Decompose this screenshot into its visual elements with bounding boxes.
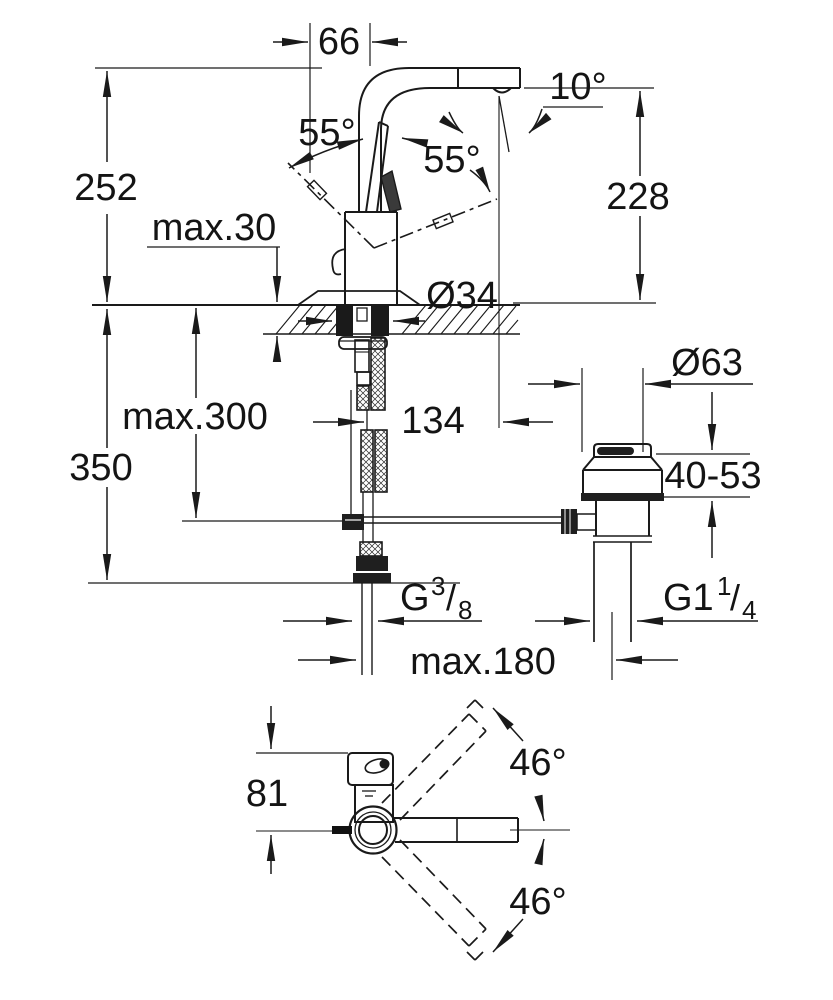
label-swivel-angle-upper: 46° (509, 742, 566, 784)
label-head-depth: 81 (246, 773, 288, 815)
label-supply-thread: G 3 / 8 (400, 571, 472, 625)
dim-max-deck-thickness (147, 247, 280, 360)
front-view-labels: 66 252 228 10° 55° 55° max.30 Ø34 max.30… (69, 21, 761, 683)
side-hook (332, 249, 346, 274)
rod-knob (561, 509, 577, 534)
swivel-base (350, 807, 397, 854)
svg-text:4: 4 (742, 595, 756, 625)
svg-text:3: 3 (431, 571, 445, 601)
label-overall-height: 252 (74, 167, 137, 209)
label-waste-flange-diameter: Ø63 (671, 342, 743, 384)
label-clearance-depth: 350 (69, 447, 132, 489)
supply-nut (353, 573, 391, 583)
label-lever-angle-left: 55° (298, 112, 355, 154)
lever-handle (366, 122, 401, 212)
svg-text:/: / (730, 577, 740, 618)
label-hole-diameter: Ø34 (426, 275, 498, 317)
svg-text:G: G (400, 577, 430, 619)
svg-text:G1: G1 (663, 577, 714, 619)
label-max-deck-thickness: max.30 (152, 207, 277, 249)
spout-top-view (393, 818, 518, 842)
arc-swivel-lower-inner (539, 839, 544, 857)
top-view-dimensions (256, 706, 544, 952)
rod-end-top-view (332, 826, 352, 834)
waste-assembly (561, 444, 664, 680)
front-view-dimensions (88, 23, 758, 660)
supply-hoses (353, 338, 391, 675)
base-escutcheon (298, 291, 420, 305)
arc-swivel-lower-outer (493, 919, 523, 952)
svg-text:8: 8 (458, 595, 472, 625)
arc-swivel-upper-inner (539, 803, 544, 821)
label-lever-angle-right: 55° (423, 139, 480, 181)
dim-lever-angle-left (288, 139, 374, 248)
swivel-range-lower (382, 840, 486, 960)
label-swivel-angle-lower: 46° (509, 881, 566, 923)
technical-drawing-page: 66 252 228 10° 55° 55° max.30 Ø34 max.30… (0, 0, 833, 1000)
swivel-range-upper (382, 700, 486, 820)
dim-clearance-depth (88, 309, 460, 583)
front-view (92, 68, 664, 680)
svg-text:/: / (446, 577, 456, 618)
label-waste-thread: G1 1 / 4 (663, 571, 756, 625)
arc-swivel-upper-outer (493, 708, 523, 741)
waste-seal-ring (581, 493, 664, 501)
label-aerator-angle: 10° (549, 66, 606, 108)
label-spout-projection: 66 (318, 21, 360, 63)
label-waste-deck-range: 40-53 (664, 455, 761, 497)
label-outlet-height: 228 (606, 176, 669, 218)
label-max-hose-depth: max.300 (122, 396, 268, 438)
supply-nut (356, 556, 388, 571)
label-outlet-offset: 134 (401, 400, 464, 442)
faucet-dimension-drawing: 66 252 228 10° 55° 55° max.30 Ø34 max.30… (0, 0, 833, 1000)
label-max-waste-offset: max.180 (410, 641, 556, 683)
